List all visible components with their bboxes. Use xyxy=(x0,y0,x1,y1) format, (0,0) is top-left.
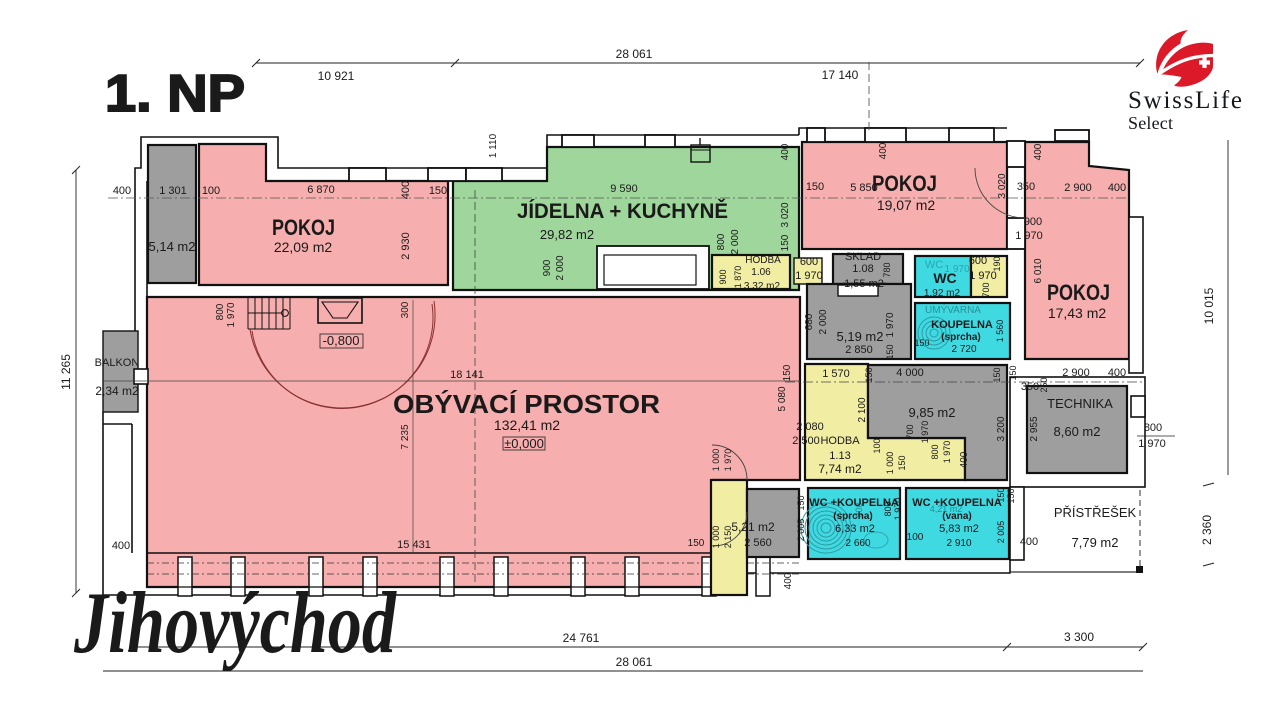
svg-text:150: 150 xyxy=(688,538,705,549)
svg-text:1 301: 1 301 xyxy=(159,185,187,197)
svg-text:5 080: 5 080 xyxy=(777,386,788,411)
svg-text:1 000: 1 000 xyxy=(711,526,721,549)
svg-text:2 360: 2 360 xyxy=(1200,515,1214,545)
svg-text:28 061: 28 061 xyxy=(616,655,653,669)
svg-text:2 900: 2 900 xyxy=(1062,367,1090,379)
svg-text:9 590: 9 590 xyxy=(610,183,638,195)
svg-text:(sprcha): (sprcha) xyxy=(941,332,980,343)
svg-text:400: 400 xyxy=(1020,536,1038,548)
svg-text:150: 150 xyxy=(992,367,1002,382)
svg-text:600: 600 xyxy=(969,255,987,267)
svg-text:400: 400 xyxy=(113,185,131,197)
svg-text:6 870: 6 870 xyxy=(307,184,335,196)
svg-text:1,92 m2: 1,92 m2 xyxy=(924,288,961,299)
svg-text:2 100: 2 100 xyxy=(857,397,868,422)
svg-text:150: 150 xyxy=(864,367,874,382)
svg-text:POKOJ: POKOJ xyxy=(872,171,937,196)
svg-text:1 970: 1 970 xyxy=(920,421,930,444)
svg-text:UMÝVARNA: UMÝVARNA xyxy=(925,303,981,316)
svg-text:-0,800: -0,800 xyxy=(323,333,360,348)
svg-text:PŘÍSTŘEŠEK: PŘÍSTŘEŠEK xyxy=(1054,505,1137,520)
svg-text:150: 150 xyxy=(796,495,806,510)
svg-text:2 910: 2 910 xyxy=(946,538,971,549)
svg-text:1.08: 1.08 xyxy=(852,263,873,275)
svg-text:15 431: 15 431 xyxy=(397,539,431,551)
svg-text:800: 800 xyxy=(883,501,893,516)
svg-text:2 560: 2 560 xyxy=(744,537,772,549)
svg-text:400: 400 xyxy=(783,572,794,589)
svg-text:150: 150 xyxy=(1008,365,1018,380)
svg-text:132,41 m2: 132,41 m2 xyxy=(494,417,560,433)
svg-text:4 000: 4 000 xyxy=(896,367,924,379)
svg-text:7 235: 7 235 xyxy=(400,424,411,449)
svg-text:HODBA: HODBA xyxy=(745,255,781,266)
svg-text:1 570: 1 570 xyxy=(822,368,850,380)
svg-text:10 015: 10 015 xyxy=(1202,287,1216,324)
svg-text:1.06: 1.06 xyxy=(751,267,771,278)
svg-text:1 970: 1 970 xyxy=(723,449,733,472)
svg-text:5,83 m2: 5,83 m2 xyxy=(939,523,979,535)
svg-text:28 061: 28 061 xyxy=(616,47,653,61)
svg-text:22,09 m2: 22,09 m2 xyxy=(274,239,333,255)
svg-text:3,32 m2: 3,32 m2 xyxy=(744,281,781,292)
svg-text:400: 400 xyxy=(959,451,970,468)
svg-text:1 000: 1 000 xyxy=(711,449,721,472)
svg-text:350: 350 xyxy=(1017,181,1035,193)
svg-text:1 000: 1 000 xyxy=(885,452,895,475)
svg-text:1 560: 1 560 xyxy=(995,320,1005,343)
svg-text:24 761: 24 761 xyxy=(563,631,600,645)
svg-text:2 005: 2 005 xyxy=(996,521,1006,544)
svg-text:800: 800 xyxy=(930,444,940,459)
svg-text:2 500: 2 500 xyxy=(792,435,820,447)
svg-text:1 870: 1 870 xyxy=(733,266,743,289)
svg-text:600: 600 xyxy=(800,256,818,268)
svg-text:300: 300 xyxy=(400,301,411,318)
svg-text:400: 400 xyxy=(400,181,412,199)
svg-text:1 970: 1 970 xyxy=(942,441,952,464)
svg-text:150: 150 xyxy=(780,234,791,251)
svg-text:POKOJ: POKOJ xyxy=(272,215,335,240)
svg-text:1 970: 1 970 xyxy=(893,498,903,521)
svg-text:100: 100 xyxy=(202,185,220,197)
svg-text:780: 780 xyxy=(882,262,892,277)
svg-text:1 970: 1 970 xyxy=(1015,230,1043,242)
svg-text:100: 100 xyxy=(907,532,924,543)
svg-text:TECHNIKA: TECHNIKA xyxy=(1047,396,1113,411)
svg-text:7,74 m2: 7,74 m2 xyxy=(818,462,862,476)
svg-text:100: 100 xyxy=(872,438,882,453)
svg-text:WC: WC xyxy=(933,270,956,286)
svg-text:150: 150 xyxy=(897,455,907,470)
svg-text:800: 800 xyxy=(716,233,727,250)
svg-text:2 660: 2 660 xyxy=(845,538,870,549)
svg-text:2 005: 2 005 xyxy=(796,519,806,542)
svg-text:3 020: 3 020 xyxy=(780,202,791,227)
svg-text:2 930: 2 930 xyxy=(400,232,412,260)
svg-text:±0,000: ±0,000 xyxy=(504,436,544,451)
svg-text:2 000: 2 000 xyxy=(730,229,741,254)
svg-text:350: 350 xyxy=(1021,381,1039,393)
svg-text:2 150: 2 150 xyxy=(723,526,733,549)
svg-text:1. NP: 1. NP xyxy=(105,65,245,123)
svg-text:11 265: 11 265 xyxy=(59,354,73,390)
svg-text:680: 680 xyxy=(804,313,815,330)
svg-text:3 200: 3 200 xyxy=(996,416,1007,441)
svg-text:400: 400 xyxy=(878,142,889,159)
svg-text:400: 400 xyxy=(780,143,791,160)
svg-text:700: 700 xyxy=(981,282,991,297)
svg-text:SKLAD: SKLAD xyxy=(845,251,881,263)
svg-text:190: 190 xyxy=(992,256,1002,271)
svg-text:400: 400 xyxy=(1033,143,1044,160)
svg-text:1 970: 1 970 xyxy=(795,270,823,282)
svg-text:900: 900 xyxy=(1024,216,1042,228)
svg-text:1 110: 1 110 xyxy=(488,133,499,158)
svg-text:400: 400 xyxy=(112,540,130,552)
svg-text:400: 400 xyxy=(1108,182,1126,194)
svg-text:150: 150 xyxy=(429,185,447,197)
svg-text:400: 400 xyxy=(1108,367,1126,379)
svg-text:9,85 m2: 9,85 m2 xyxy=(909,405,956,420)
svg-text:HODBA: HODBA xyxy=(820,435,860,447)
svg-text:150: 150 xyxy=(806,181,824,193)
svg-text:18 141: 18 141 xyxy=(450,369,484,381)
svg-text:5,14 m2: 5,14 m2 xyxy=(149,239,196,254)
svg-text:150: 150 xyxy=(914,338,929,348)
svg-text:250: 250 xyxy=(1039,377,1049,392)
svg-text:OBÝVACÍ PROSTOR: OBÝVACÍ PROSTOR xyxy=(393,389,660,419)
svg-text:17,43 m2: 17,43 m2 xyxy=(1048,305,1107,321)
svg-text:7,79 m2: 7,79 m2 xyxy=(1072,535,1119,550)
svg-text:700: 700 xyxy=(905,424,915,439)
svg-text:1 970: 1 970 xyxy=(1138,438,1166,450)
svg-text:(vana): (vana) xyxy=(942,511,971,522)
svg-text:900: 900 xyxy=(542,259,553,276)
svg-text:2 955: 2 955 xyxy=(1029,416,1040,441)
svg-text:Select: Select xyxy=(1128,113,1173,133)
svg-text:5 850: 5 850 xyxy=(850,182,878,194)
svg-text:2 000: 2 000 xyxy=(818,309,829,334)
svg-text:8,60 m2: 8,60 m2 xyxy=(1054,424,1101,439)
svg-text:800: 800 xyxy=(1144,422,1162,434)
svg-text:WC +KOUPELNA: WC +KOUPELNA xyxy=(912,497,1002,509)
svg-text:6,33 m2: 6,33 m2 xyxy=(835,523,875,535)
svg-text:17 140: 17 140 xyxy=(822,68,859,82)
svg-text:2 850: 2 850 xyxy=(845,344,873,356)
svg-text:5,19 m2: 5,19 m2 xyxy=(837,329,884,344)
svg-text:POKOJ: POKOJ xyxy=(1047,280,1110,305)
svg-text:2 900: 2 900 xyxy=(1064,182,1092,194)
svg-text:JÍDELNA + KUCHYNĚ: JÍDELNA + KUCHYNĚ xyxy=(517,199,728,223)
svg-text:29,82 m2: 29,82 m2 xyxy=(540,227,594,242)
svg-text:5,21 m2: 5,21 m2 xyxy=(731,520,775,534)
svg-text:3 020: 3 020 xyxy=(997,173,1008,198)
svg-text:2 000: 2 000 xyxy=(555,255,566,280)
svg-text:(sprcha): (sprcha) xyxy=(833,511,872,522)
svg-text:150: 150 xyxy=(996,487,1006,502)
svg-text:2 080: 2 080 xyxy=(796,421,824,433)
svg-text:1.13: 1.13 xyxy=(829,450,850,462)
svg-text:2 720: 2 720 xyxy=(951,344,976,355)
svg-text:KOUPELNA: KOUPELNA xyxy=(931,319,993,331)
svg-text:1,55 m2: 1,55 m2 xyxy=(844,278,884,290)
svg-text:19,07 m2: 19,07 m2 xyxy=(877,197,936,213)
svg-text:2,34 m2: 2,34 m2 xyxy=(95,384,139,398)
svg-text:150: 150 xyxy=(782,364,793,381)
svg-text:Jihovýchod: Jihovýchod xyxy=(73,575,397,672)
svg-text:SwissLife: SwissLife xyxy=(1128,87,1242,114)
svg-text:800: 800 xyxy=(215,303,226,320)
svg-text:900: 900 xyxy=(718,269,728,284)
svg-text:1 970: 1 970 xyxy=(885,312,896,337)
svg-text:150: 150 xyxy=(885,344,895,359)
svg-text:BALKON: BALKON xyxy=(95,357,140,369)
svg-text:10 921: 10 921 xyxy=(318,69,355,83)
svg-text:150: 150 xyxy=(1006,488,1016,503)
svg-text:6 010: 6 010 xyxy=(1033,258,1044,283)
svg-text:1 970: 1 970 xyxy=(226,302,237,327)
svg-text:3 300: 3 300 xyxy=(1064,630,1094,644)
